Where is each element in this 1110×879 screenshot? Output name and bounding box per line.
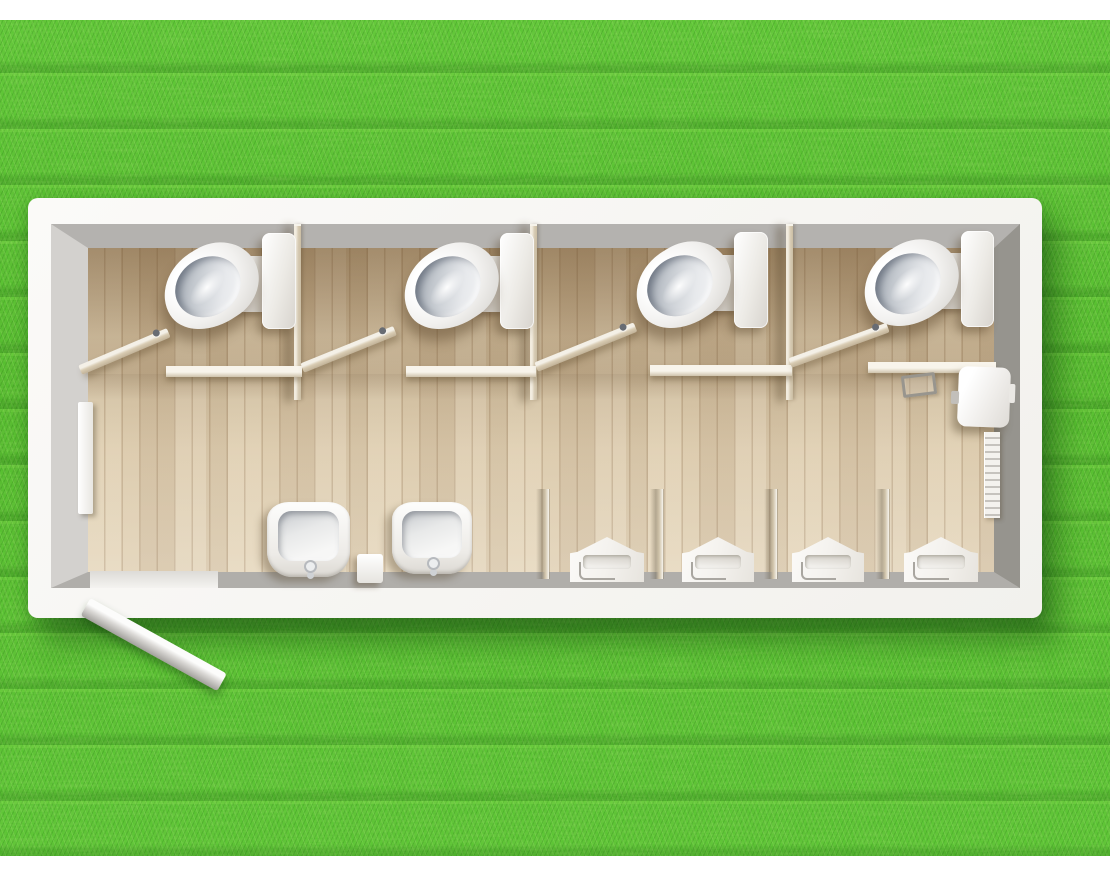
cubicle-front-wall-2 [406, 366, 536, 377]
cubicle-front-wall-1 [166, 366, 302, 377]
cistern-4 [961, 231, 994, 327]
fixtures-layer [0, 0, 1110, 879]
cistern-1 [262, 233, 296, 329]
toilet-4 [848, 223, 974, 342]
urinal-divider-1 [536, 489, 549, 579]
cistern-3 [734, 232, 768, 328]
top-white-margin [0, 0, 1110, 20]
cubicle-door-4 [788, 323, 889, 368]
urinal-divider-4 [876, 489, 889, 579]
urinal-3 [792, 537, 864, 582]
cubicle-door-3 [534, 322, 637, 371]
cubicle-front-wall-3 [650, 365, 792, 376]
wash-basin-1 [267, 502, 350, 577]
urinal-divider-3 [764, 489, 777, 579]
toilet-2 [388, 226, 514, 345]
between-sink-block [357, 554, 383, 583]
entrance-threshold [90, 571, 218, 588]
toilet-3 [620, 225, 746, 344]
cistern-2 [500, 233, 534, 329]
toilet-1 [148, 226, 274, 345]
left-wall-panel [78, 402, 93, 514]
urinal-1 [570, 537, 644, 582]
screenshot-stage [0, 0, 1110, 879]
urinal-4 [904, 537, 978, 582]
wall-strip-radiator [984, 432, 1000, 518]
urinal-divider-2 [650, 489, 663, 579]
cubicle-door-1 [78, 328, 170, 375]
wash-basin-2 [392, 502, 472, 574]
floor-drain-frame [901, 372, 937, 398]
wall-mounted-unit [957, 366, 1011, 428]
bottom-white-margin [0, 856, 1110, 879]
cubicle-door-2 [300, 326, 396, 373]
urinal-2 [682, 537, 754, 582]
entrance-door-open [81, 598, 227, 691]
